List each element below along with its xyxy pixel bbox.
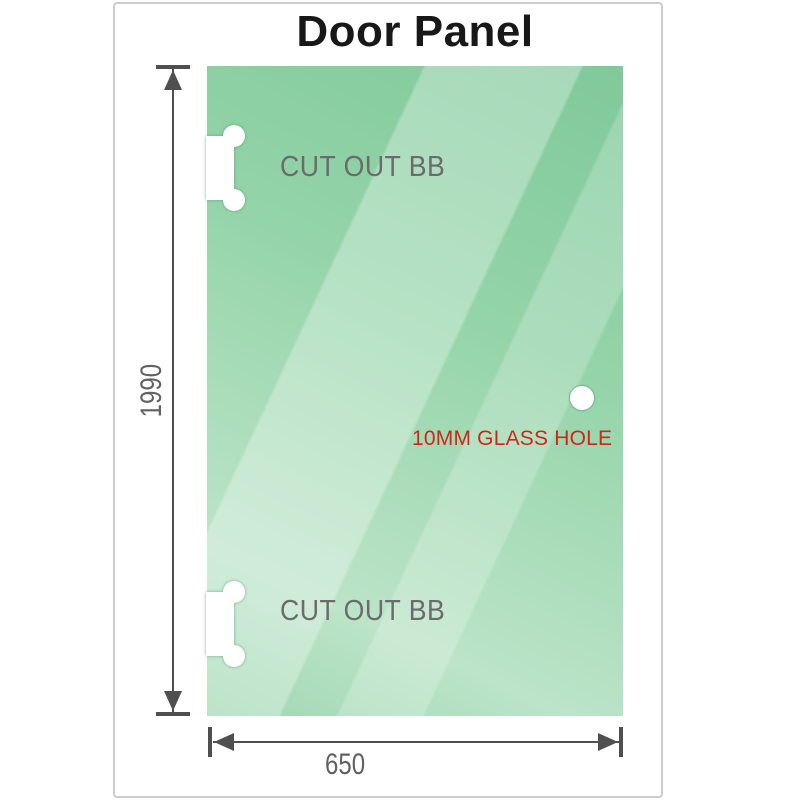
hinge-cutout-top-icon	[206, 124, 252, 216]
height-dim-line	[172, 69, 174, 713]
width-dim-right-tick	[619, 727, 623, 757]
page-title: Door Panel	[207, 6, 623, 58]
glass-hole-icon	[570, 386, 594, 410]
arrow-left-icon	[214, 733, 234, 751]
width-dimension-label: 650	[300, 748, 390, 782]
glass-hole-label: 10MM GLASS HOLE	[412, 427, 612, 451]
height-dimension-label: 1990	[136, 349, 168, 433]
width-dim-left-tick	[208, 727, 212, 757]
arrow-down-icon	[164, 691, 182, 711]
door-panel-diagram: Door Panel CUT OUT BB CUT OUT BB 10MM GL…	[0, 0, 800, 800]
hinge-cutout-bottom-icon	[206, 580, 252, 672]
cutout-bottom-label: CUT OUT BB	[280, 594, 445, 628]
cutout-top-label: CUT OUT BB	[280, 150, 445, 184]
arrow-up-icon	[164, 70, 182, 90]
height-dim-bottom-tick	[156, 712, 190, 716]
width-dim-line	[213, 741, 619, 743]
arrow-right-icon	[598, 733, 618, 751]
